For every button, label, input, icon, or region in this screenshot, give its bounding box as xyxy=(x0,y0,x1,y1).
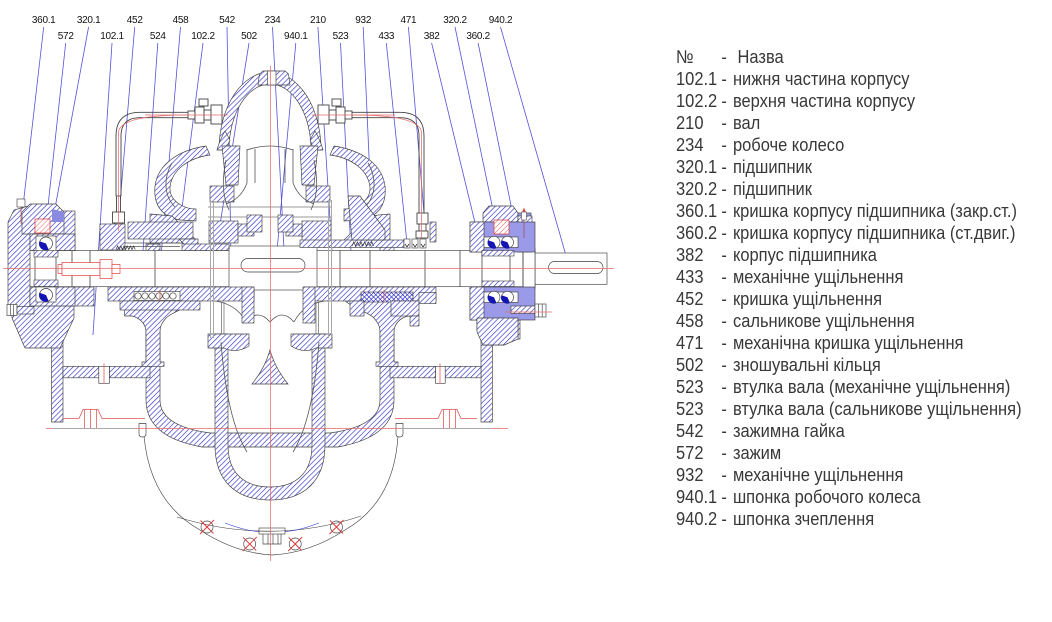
svg-text:458: 458 xyxy=(173,15,190,26)
svg-text:524: 524 xyxy=(150,31,167,42)
svg-text:210: 210 xyxy=(310,15,327,26)
svg-text:320.1: 320.1 xyxy=(77,15,101,26)
svg-text:572: 572 xyxy=(58,31,75,42)
svg-text:523: 523 xyxy=(333,31,350,42)
svg-text:360.1: 360.1 xyxy=(32,15,56,26)
svg-text:234: 234 xyxy=(265,15,282,26)
svg-text:452: 452 xyxy=(127,15,144,26)
svg-text:382: 382 xyxy=(424,31,441,42)
svg-text:940.1: 940.1 xyxy=(284,31,308,42)
svg-text:542: 542 xyxy=(219,15,236,26)
svg-text:320.2: 320.2 xyxy=(443,15,467,26)
svg-text:471: 471 xyxy=(401,15,418,26)
svg-text:940.2: 940.2 xyxy=(489,15,513,26)
svg-text:433: 433 xyxy=(378,31,395,42)
svg-text:502: 502 xyxy=(241,31,258,42)
svg-text:102.2: 102.2 xyxy=(191,31,215,42)
svg-text:102.1: 102.1 xyxy=(100,31,124,42)
svg-text:360.2: 360.2 xyxy=(466,31,490,42)
svg-text:932: 932 xyxy=(355,15,372,26)
